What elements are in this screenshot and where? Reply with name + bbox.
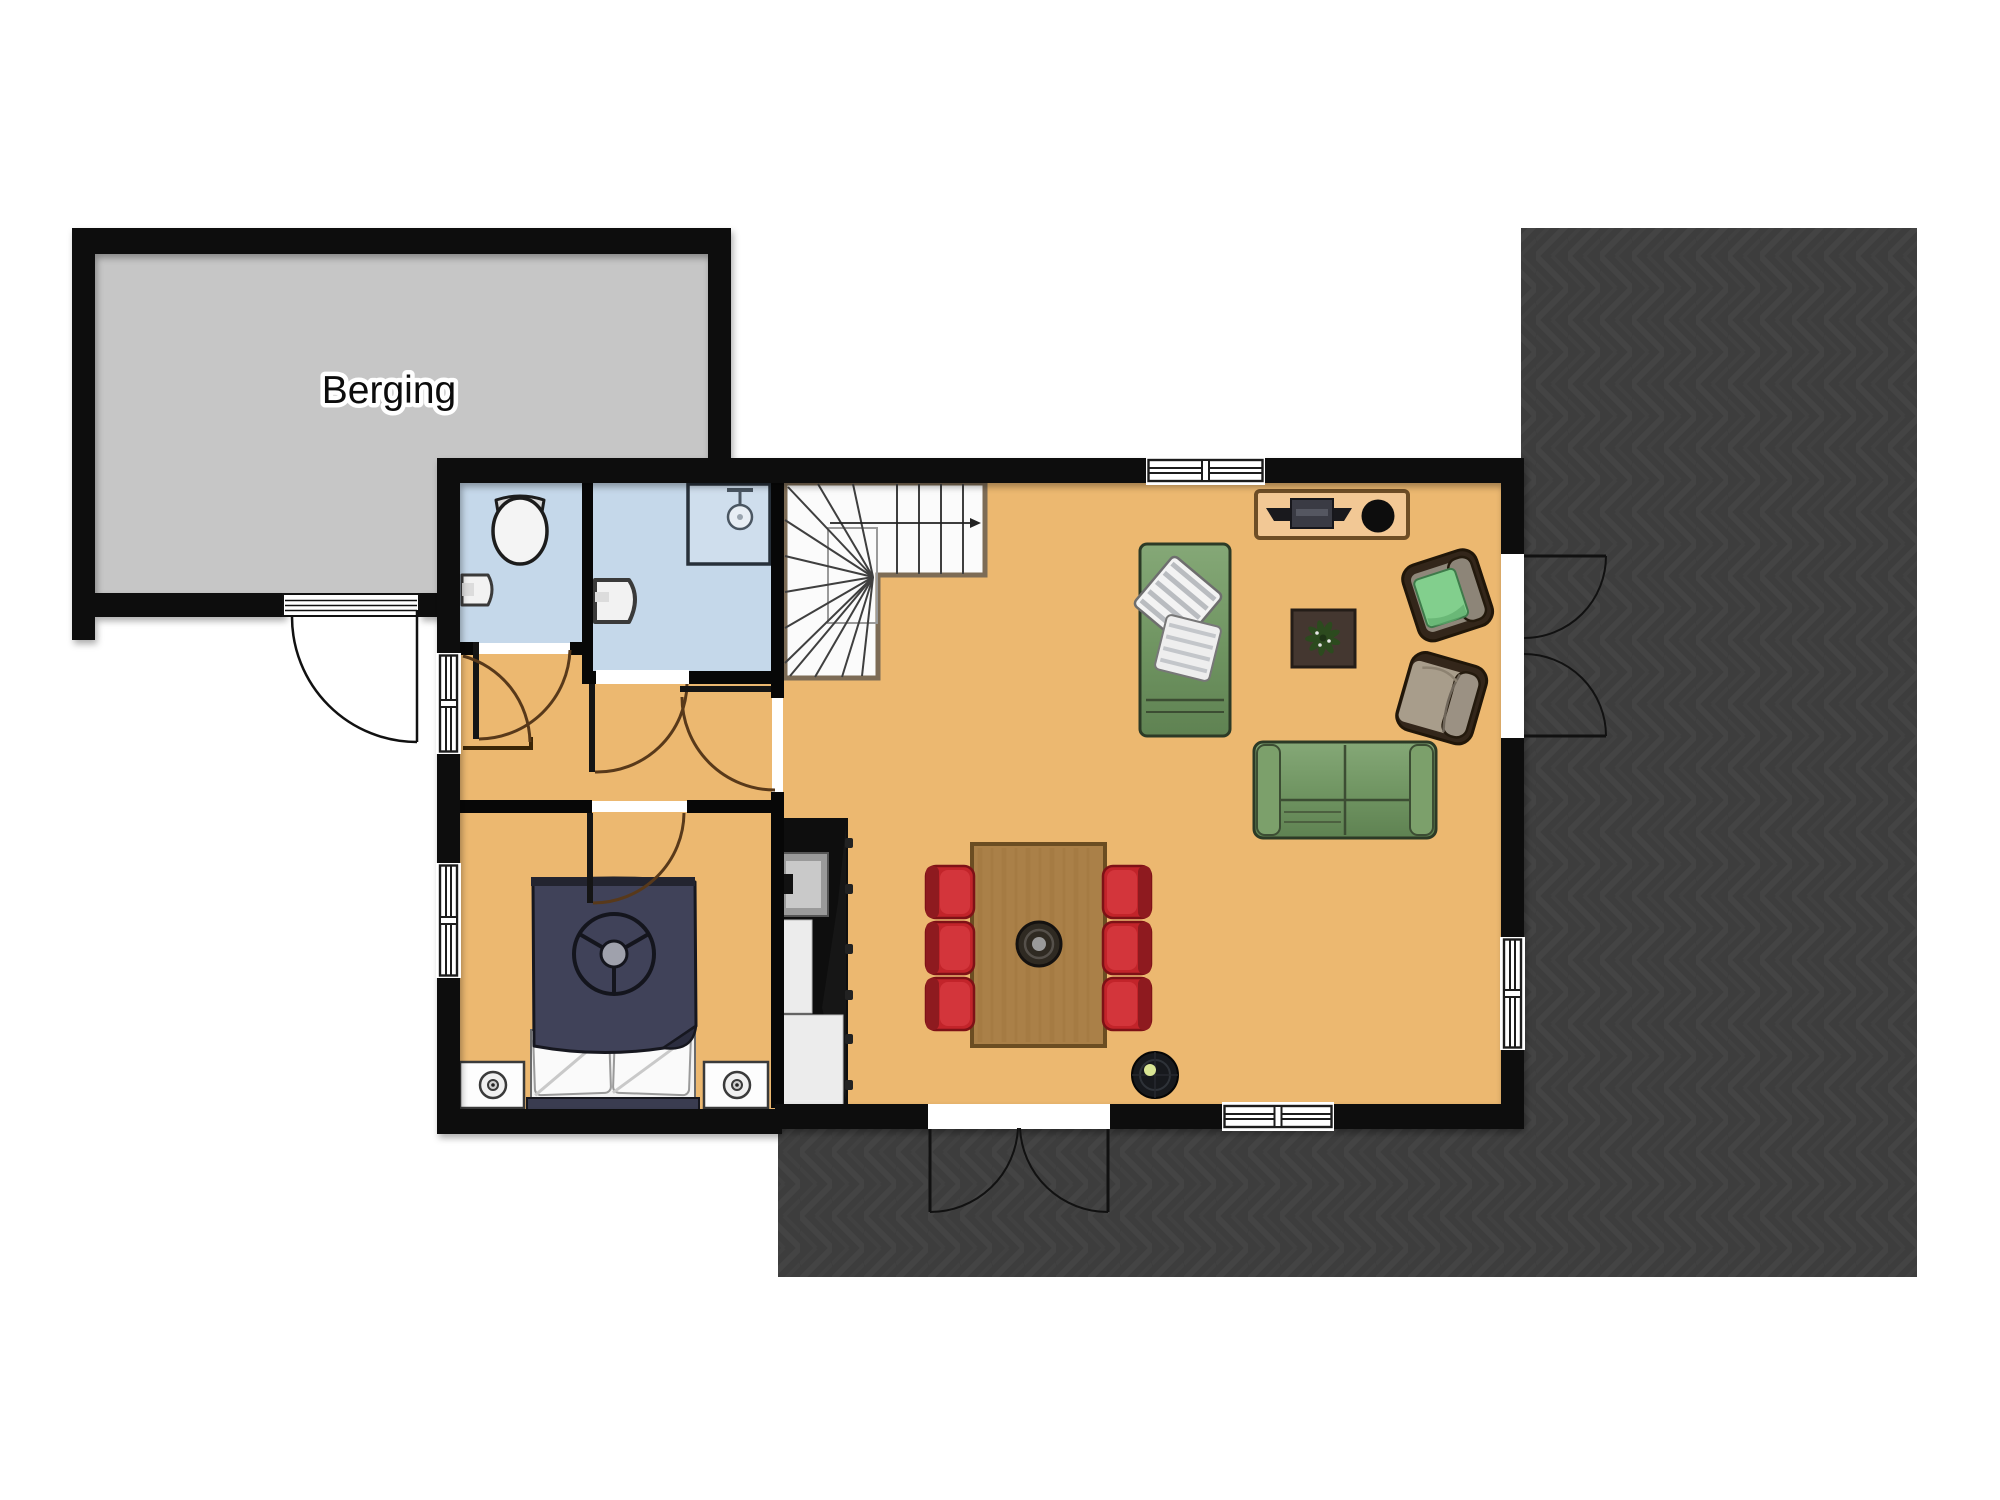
svg-text:Berging: Berging bbox=[322, 369, 456, 412]
